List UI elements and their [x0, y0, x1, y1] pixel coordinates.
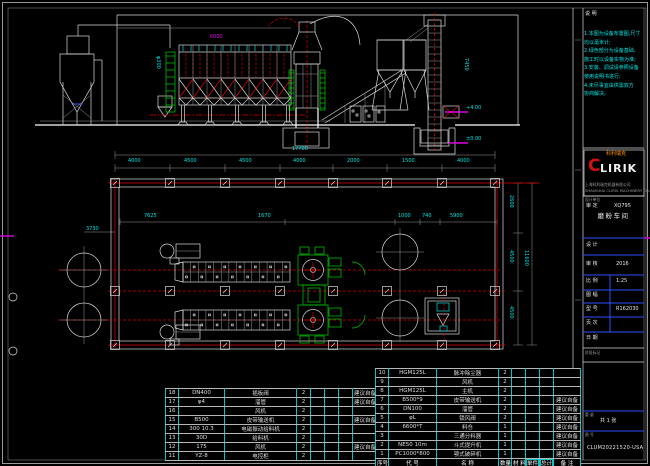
dim-inner-2: 1670 [258, 214, 271, 219]
dim-right-1: 2600 [508, 195, 513, 208]
green-duct [166, 52, 175, 112]
dim-plan-total: 17700 [292, 147, 308, 152]
drawing-sheet: 17700 4000 4500 4500 4000 2000 1500 4000… [0, 0, 650, 466]
feeder-unit [158, 96, 172, 117]
elevation-view [35, 13, 520, 154]
dim-bay-5: 2000 [347, 159, 360, 164]
column-markers [111, 179, 500, 350]
dim-right-total: 11600 [523, 250, 528, 266]
dim-inner-3: 1000 [398, 214, 411, 219]
dim-left: 3730 [86, 227, 99, 232]
dim-bay-4: 4000 [293, 159, 306, 164]
motor-unit-plan-1 [160, 244, 200, 264]
bucket-elevator [414, 13, 468, 154]
plan-view [0, 151, 540, 355]
dim-bay-2: 4500 [184, 159, 197, 164]
motor-unit-plan-2 [160, 325, 200, 345]
elevator-plan [425, 293, 459, 340]
dim-bay-1: 4000 [128, 159, 141, 164]
cyclone-collector [60, 25, 170, 125]
label-ground-level: ±0.00 [466, 137, 481, 142]
bom-table-right: 10HGM125L脉冲除尘器29风机28HGM125L主机27B500*9皮带输… [375, 368, 581, 466]
electric-cabinets [350, 106, 385, 122]
dim-bay-3: 4500 [239, 159, 252, 164]
dim-bay-7: 4000 [457, 159, 470, 164]
inclined-conveyor [322, 70, 406, 123]
mill-connector [303, 262, 365, 328]
dim-inner-4: 740 [422, 214, 432, 219]
mill-plan-1 [298, 247, 341, 285]
label-duct: φ300 [155, 56, 160, 69]
notes-block: 1.本图为设备布置图,尺寸 均以毫米计;2.绿色部分为设备基础, 施工时以设备实… [584, 30, 644, 99]
label-inlet-level: +4.00 [466, 106, 481, 111]
dim-bay-6: 1500 [402, 159, 415, 164]
dim-inner-1: 7625 [144, 214, 157, 219]
dim-inner-5: 5900 [450, 214, 463, 219]
baghouse-frame [179, 45, 291, 105]
cyclone-tanks-plan [0, 228, 424, 355]
plan-dimensions [84, 151, 537, 345]
bom-table-left: 18DN400插板阀2建议自备17φ4溜管2建议自备16风机215B500皮带输… [165, 388, 376, 461]
storage-hoppers [372, 24, 429, 110]
mill-plan-2 [298, 305, 341, 343]
dim-right-3: 4500 [508, 306, 513, 319]
dim-right-2: 4500 [508, 250, 513, 263]
mill-unit [268, 16, 360, 150]
baghouse-legs [178, 105, 293, 125]
plan-grid-cells [183, 262, 290, 330]
dim-elevator: 7450 [463, 58, 468, 71]
dim-baghouse: 6000 [210, 35, 223, 40]
